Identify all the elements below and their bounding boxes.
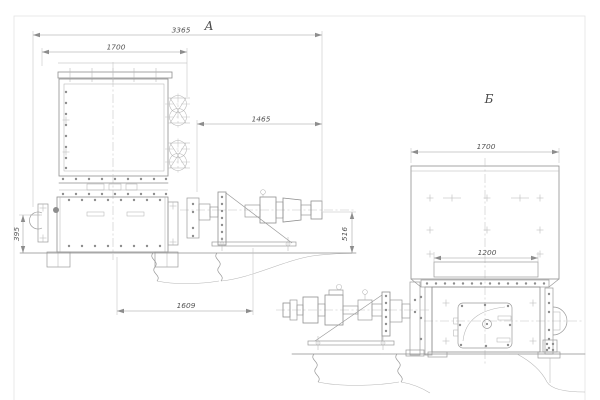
dim-1465: 1465 [197, 115, 322, 193]
dim-395: 395 [12, 215, 40, 253]
dim-text-top-width: 1700 [107, 43, 126, 52]
front-right-flange [168, 202, 178, 246]
dim-text-drive-height: 516 [340, 227, 349, 241]
dim-516: 516 [323, 212, 356, 253]
dim-text-hopper-width: 1700 [477, 142, 496, 151]
sheet-frame [14, 16, 585, 400]
dim-overall-3365: 3365 [33, 26, 322, 213]
plan-left-bolts [63, 91, 70, 169]
view-a-foundation [20, 253, 356, 284]
view-b-body [406, 282, 582, 383]
belt-pulleys [165, 94, 191, 173]
front-feet [47, 252, 178, 267]
view-a-drive [180, 190, 356, 251]
dim-text-flange-height: 395 [12, 227, 21, 241]
front-left-flange [29, 204, 59, 242]
view-b-foundation [292, 354, 585, 393]
view-b: Б [276, 92, 585, 393]
dim-text-drive-span: 1465 [252, 115, 271, 124]
view-a-front [29, 197, 178, 267]
drawing-canvas: А [0, 0, 600, 400]
dim-text-overall: 3365 [172, 26, 191, 35]
view-a-label: А [203, 19, 213, 33]
view-b-label: Б [484, 92, 494, 106]
view-a: А [12, 19, 356, 315]
dim-1609: 1609 [117, 248, 253, 315]
dim-text-base-span: 1609 [177, 301, 196, 310]
view-b-motor [276, 284, 430, 350]
dim-text-outlet-width: 1200 [478, 248, 497, 257]
dim-outlet-1200: 1200 [434, 248, 538, 266]
drive-bracket-b [308, 295, 394, 350]
view-b-hopper [411, 158, 559, 365]
view-a-plan [58, 62, 191, 260]
technical-drawing-sheet: А [0, 0, 600, 400]
access-door [454, 303, 513, 348]
plan-bottom-flange [59, 178, 168, 195]
